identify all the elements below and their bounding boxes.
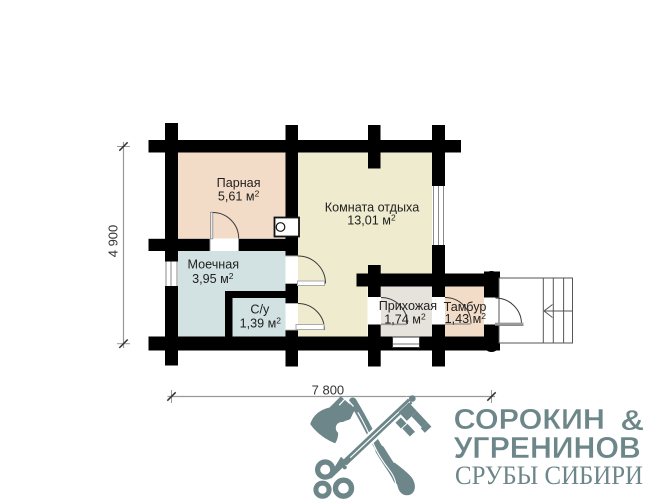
svg-text:13,01 м2: 13,01 м2 — [347, 213, 396, 228]
svg-text:Прихожая: Прихожая — [379, 299, 437, 313]
svg-text:1,39 м2: 1,39 м2 — [240, 316, 282, 331]
svg-text:7 800: 7 800 — [312, 383, 345, 398]
svg-text:С/у: С/у — [250, 303, 270, 317]
svg-text:Моечная: Моечная — [188, 258, 240, 272]
svg-text:3,95 м2: 3,95 м2 — [192, 271, 234, 286]
svg-text:4 900: 4 900 — [106, 225, 121, 258]
svg-text:СРУБЫ СИБИРИ: СРУБЫ СИБИРИ — [455, 460, 643, 490]
svg-text:1,43 м2: 1,43 м2 — [445, 311, 487, 326]
svg-text:Комната отдыха: Комната отдыха — [325, 200, 419, 214]
svg-text:5,61 м2: 5,61 м2 — [218, 188, 260, 203]
svg-text:1,74 м2: 1,74 м2 — [384, 311, 426, 326]
